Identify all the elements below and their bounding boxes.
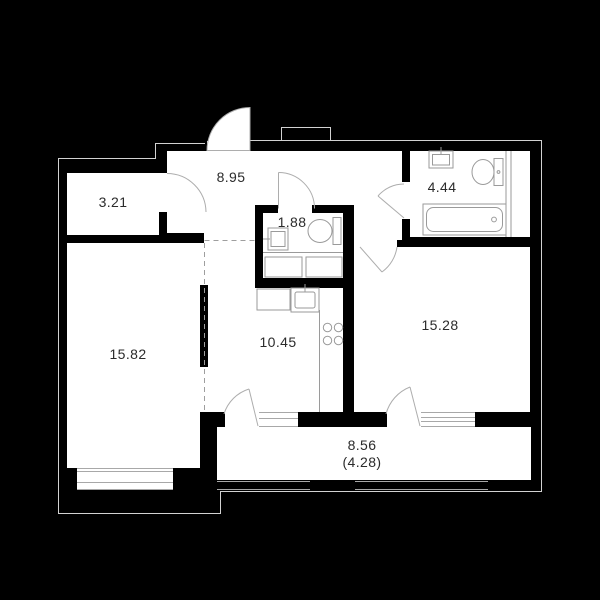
bedroom-window: [77, 468, 173, 490]
bedroom-area-label: 15.82: [109, 346, 146, 362]
hallway-area-label: 8.95: [217, 169, 246, 185]
balcony-area-label: 8.56: [348, 437, 377, 453]
wc-door-opening: [278, 205, 312, 213]
floor-plan: 3.21 8.95 4.44 1.88 15.82 10.45 15.28 8.…: [0, 0, 600, 600]
wardrobe-door-opening: [159, 173, 167, 212]
hall-bedroom-wall: [159, 233, 204, 243]
kitchen-area-label: 10.45: [259, 334, 296, 350]
balcony-left-wall: [200, 427, 217, 492]
balcony-rail-post: [310, 480, 355, 491]
kitchen-balcony-window: [259, 412, 298, 427]
bathroom-door-opening: [400, 182, 410, 219]
bathtub-icon: [423, 204, 506, 235]
bathroom-area-label: 4.44: [428, 179, 457, 195]
balcony-reduced-area-label: (4.28): [343, 454, 382, 470]
kitchen-sink-icon: [291, 284, 319, 312]
kitchen-balcony-door-opening: [222, 412, 259, 427]
balcony-rail-post: [488, 480, 531, 491]
living-balcony-window: [421, 412, 475, 427]
living-balcony-door-opening: [387, 412, 421, 427]
balcony-left-wall-top: [200, 412, 225, 427]
wc-area-label: 1.88: [278, 214, 307, 230]
toilet-icon: [472, 159, 503, 186]
corridor-nook-floor: [354, 205, 397, 247]
wardrobe-area-label: 3.21: [99, 194, 128, 210]
wc-toilet-icon: [308, 218, 341, 245]
living-room-area-label: 15.28: [421, 317, 458, 333]
